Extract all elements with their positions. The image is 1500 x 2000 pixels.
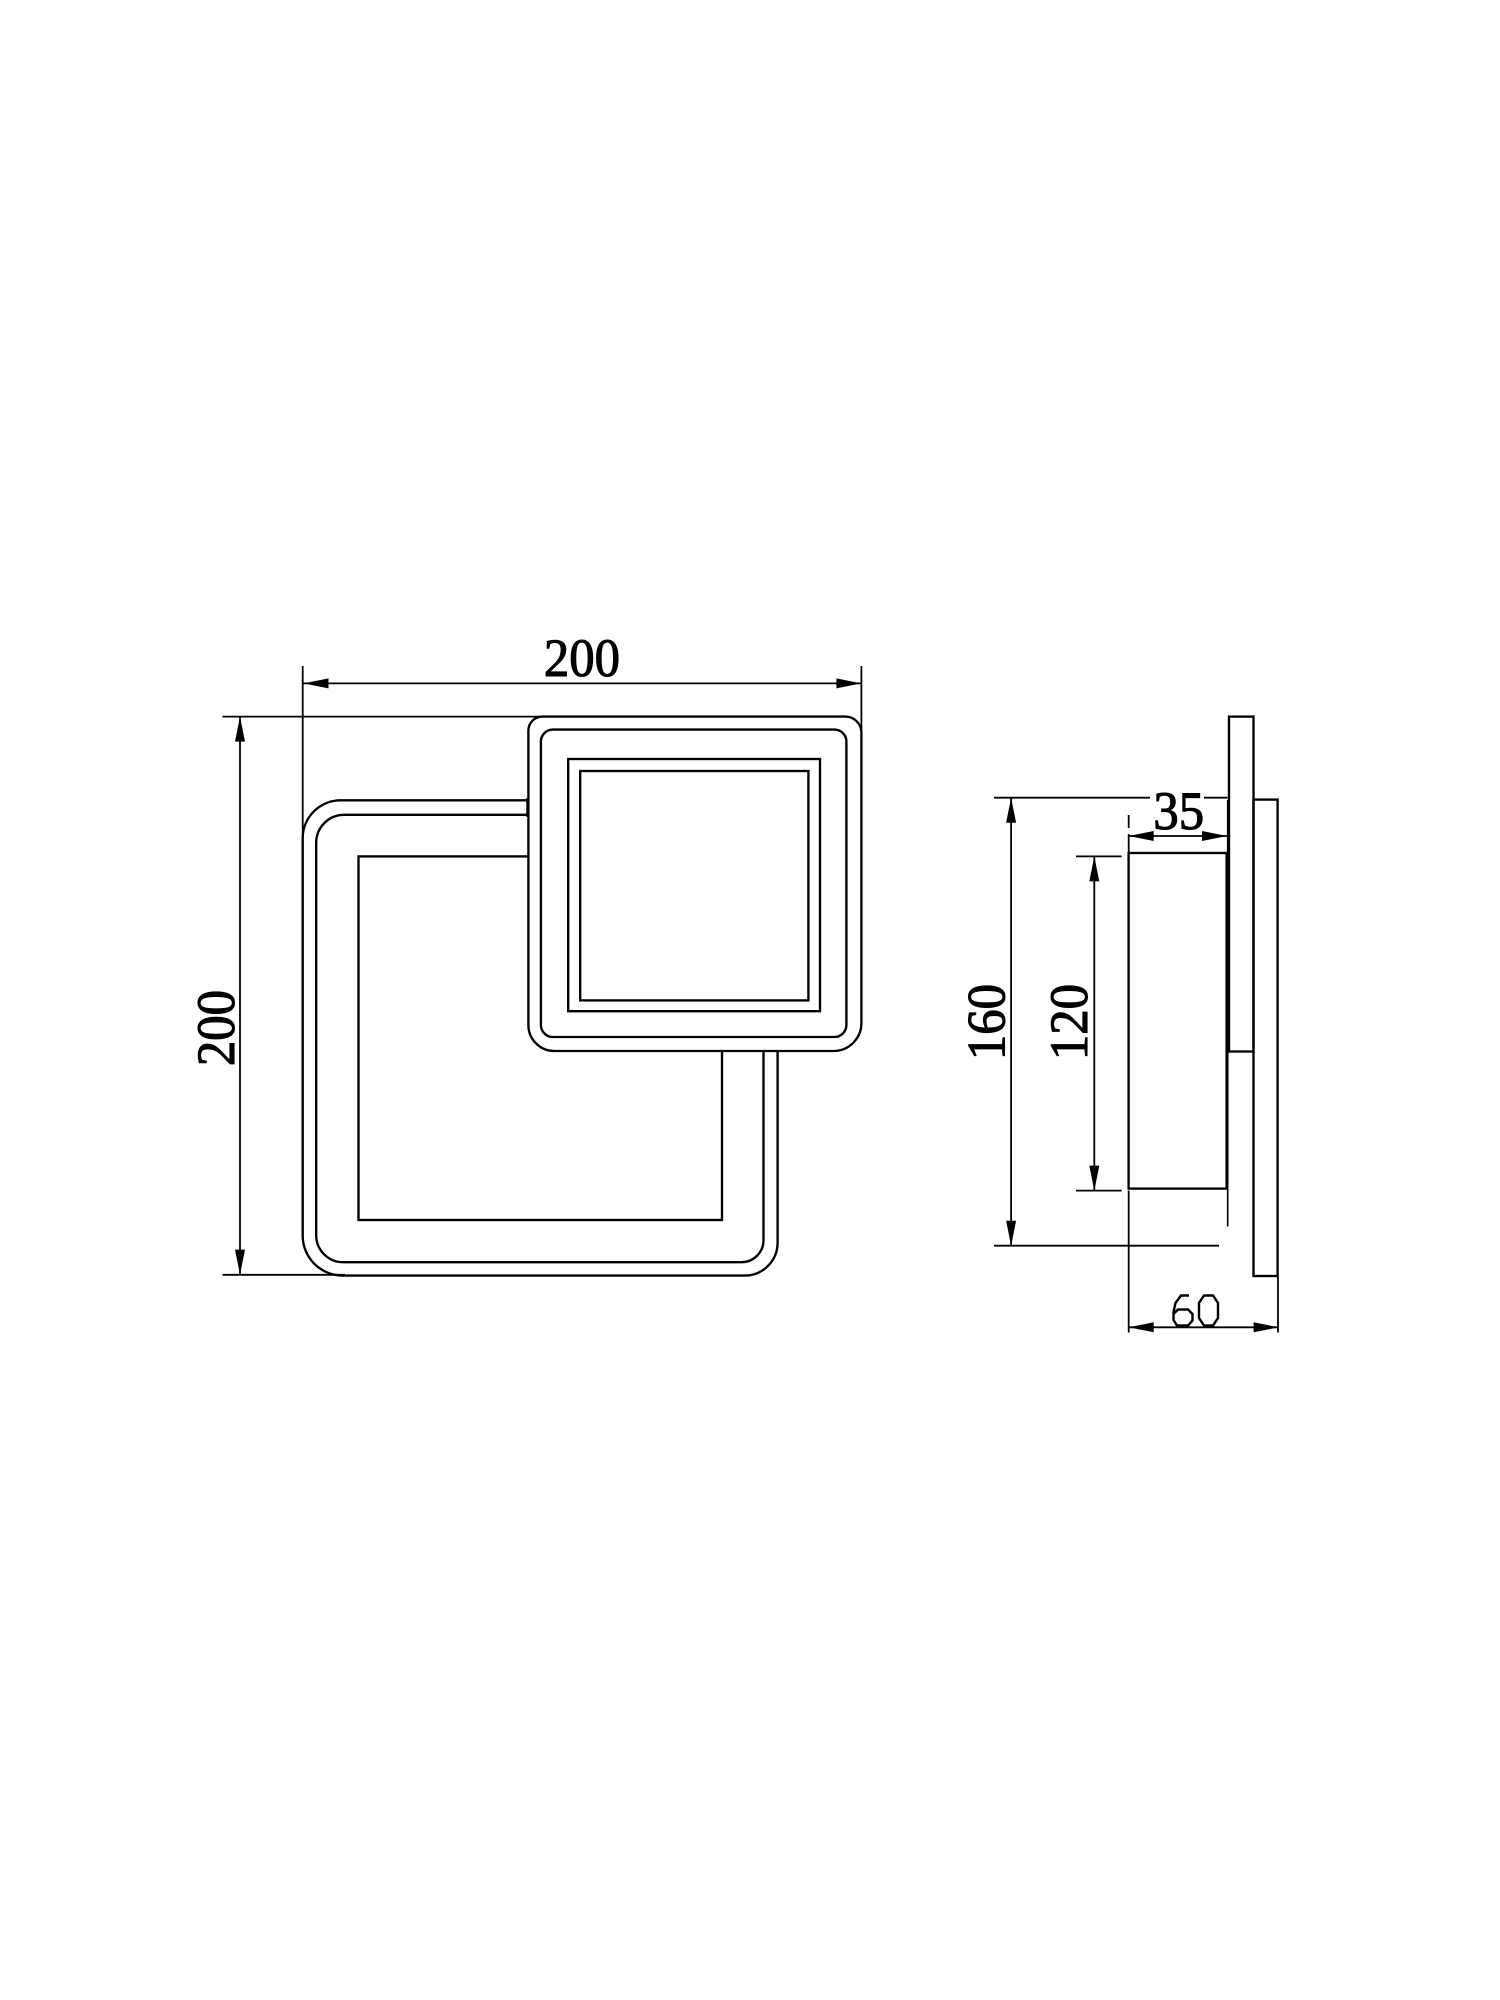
svg-text:35: 35	[1153, 781, 1204, 841]
svg-text:120: 120	[1040, 984, 1100, 1060]
svg-text:160: 160	[957, 984, 1017, 1060]
svg-text:200: 200	[187, 990, 247, 1066]
svg-text:200: 200	[544, 628, 620, 688]
